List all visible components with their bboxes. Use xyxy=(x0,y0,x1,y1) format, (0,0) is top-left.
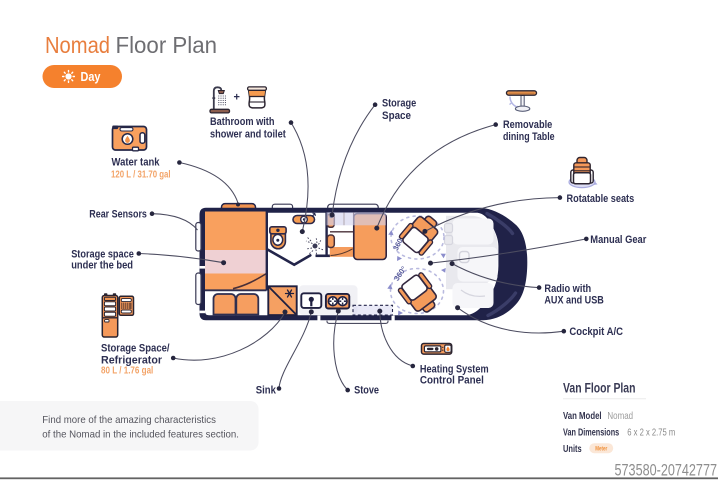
svg-text:Removable: Removable xyxy=(503,119,552,131)
svg-text:+: + xyxy=(234,92,240,104)
svg-text:AUX and USB: AUX and USB xyxy=(544,295,603,307)
svg-text:Units: Units xyxy=(563,443,582,455)
svg-text:of the Nomad in the included f: of the Nomad in the included features se… xyxy=(42,428,239,440)
svg-text:80 L / 1.76 gal: 80 L / 1.76 gal xyxy=(101,366,153,377)
svg-text:Find more of the amazing chara: Find more of the amazing characteristics xyxy=(42,414,216,426)
svg-text:Sink: Sink xyxy=(256,385,277,397)
svg-text:Storage: Storage xyxy=(382,98,416,110)
svg-text:Radio with: Radio with xyxy=(544,283,591,295)
svg-text:Rotatable seats: Rotatable seats xyxy=(567,193,635,205)
svg-text:Van Model: Van Model xyxy=(563,410,602,422)
svg-text:Space: Space xyxy=(382,110,411,122)
svg-text:dining Table: dining Table xyxy=(503,131,555,143)
svg-text:Manual Gear: Manual Gear xyxy=(590,234,647,246)
svg-text:Nomad: Nomad xyxy=(607,410,633,422)
svg-text:Control Panel: Control Panel xyxy=(420,375,484,387)
svg-text:Stove: Stove xyxy=(354,385,379,397)
svg-text:Van Floor Plan: Van Floor Plan xyxy=(563,381,636,396)
svg-text:573580-20742777: 573580-20742777 xyxy=(615,462,718,480)
svg-text:under the bed: under the bed xyxy=(71,260,133,272)
svg-text:shower and toilet: shower and toilet xyxy=(210,129,286,141)
svg-text:Storage Space/: Storage Space/ xyxy=(101,343,170,355)
svg-text:Day: Day xyxy=(81,69,102,84)
svg-text:120 L / 31.70 gal: 120 L / 31.70 gal xyxy=(111,170,171,181)
svg-text:Meter: Meter xyxy=(595,446,607,453)
svg-text:Floor Plan: Floor Plan xyxy=(116,32,218,58)
svg-text:Van Dimensions: Van Dimensions xyxy=(563,426,619,438)
svg-text:Water tank: Water tank xyxy=(112,157,161,169)
svg-text:6 x 2 x 2.75 m: 6 x 2 x 2.75 m xyxy=(627,426,675,438)
svg-text:Cockpit A/C: Cockpit A/C xyxy=(569,326,623,338)
svg-text:Bathroom with: Bathroom with xyxy=(210,116,275,128)
svg-text:Nomad: Nomad xyxy=(45,32,110,58)
svg-text:Rear Sensors: Rear Sensors xyxy=(89,209,147,221)
